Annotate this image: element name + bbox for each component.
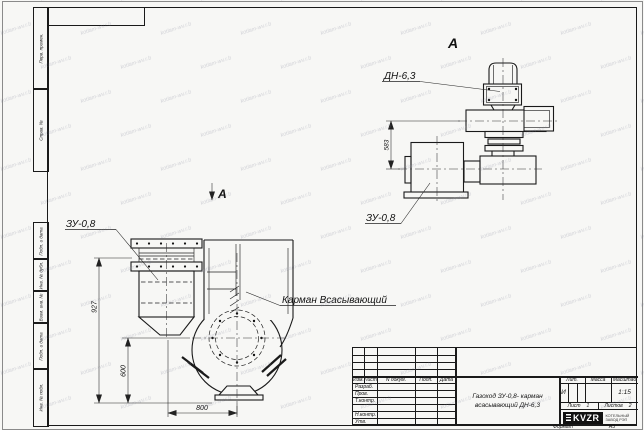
tb-scale-value: 1:15: [611, 383, 638, 402]
frame-column-sprav-no: Справ. №: [33, 88, 49, 172]
tb-document-title: Газоход ЗУ-0,8- карман всасывающий ДН-6,…: [456, 376, 559, 426]
tb-col-podp: Подп.: [415, 376, 437, 383]
tb-row-tkontr: Т.контр.: [355, 398, 375, 404]
tb-lit-value: И: [559, 383, 568, 402]
sheets-value: 2: [629, 403, 632, 409]
frame-column-vzam-inv: Взам. инв. №: [33, 290, 49, 324]
logo-stripes-icon: [566, 414, 571, 422]
frame-column-label: Подп. и дата: [39, 332, 44, 360]
sheet-label: Лист: [568, 403, 581, 409]
frame-column-label: Перв. примен.: [39, 34, 44, 64]
tb-col-ndokum: N докум.: [377, 376, 415, 383]
tb-mass-header: Масса: [585, 376, 611, 383]
frame-column-label: Инв. № дубл.: [39, 261, 44, 289]
format-value: А3: [609, 424, 615, 430]
title-line-1: Газоход ЗУ-0,8- карман: [472, 392, 542, 401]
tb-designation-cell: [456, 348, 638, 376]
tb-row-utv: Утв.: [355, 419, 366, 425]
tb-scale-header: Масштаб: [611, 376, 638, 383]
frame-column-label: Подп. и дата: [39, 227, 44, 255]
tb-col-izm: Изм.: [353, 376, 364, 383]
tb-col-data: Дата: [437, 376, 456, 383]
drawing-sheet: Перв. примен. Справ. № Подп. и дата Инв.…: [0, 0, 644, 430]
title-line-2: всасывающий ДН-6,3: [475, 401, 540, 410]
tb-lit-header: Лит.: [559, 376, 585, 383]
frame-column-perv-primen: Перв. примен.: [33, 7, 49, 90]
company-name-line2: ЗАВОД РЭП: [606, 418, 630, 422]
format-note: Формат А3: [553, 424, 615, 430]
tb-row-prov: Пров.: [355, 391, 368, 397]
tb-sheets-cell: Листов 2: [598, 402, 638, 409]
frame-column-podp-data-2: Подп. и дата: [33, 322, 49, 370]
frame-column-inv-dubl: Инв. № дубл.: [33, 258, 49, 292]
frame-column-label: Взам. инв. №: [39, 293, 44, 321]
format-label: Формат: [553, 424, 573, 430]
logo-text: KVZR: [573, 413, 600, 423]
title-block: Изм. Лист N докум. Подп. Дата Разраб. Пр…: [352, 347, 637, 425]
frame-column-label: Справ. №: [39, 120, 44, 140]
tb-row-razrab: Разраб.: [355, 384, 373, 390]
tb-row-nkontr: Н.контр.: [355, 412, 376, 418]
sheet-value: 1: [587, 403, 590, 409]
tb-col-list: Лист: [364, 376, 377, 383]
frame-column-inv-podl: Инв. № подл.: [33, 368, 49, 427]
frame-column-podp-data-1: Подп. и дата: [33, 222, 49, 260]
top-reference-cell: [47, 7, 145, 26]
tb-sheet-cell: Лист 1: [559, 402, 598, 409]
frame-column-label: Инв. № подл.: [39, 384, 44, 412]
kvzr-logo: KVZR: [563, 412, 603, 424]
sheets-label: Листов: [605, 403, 623, 409]
